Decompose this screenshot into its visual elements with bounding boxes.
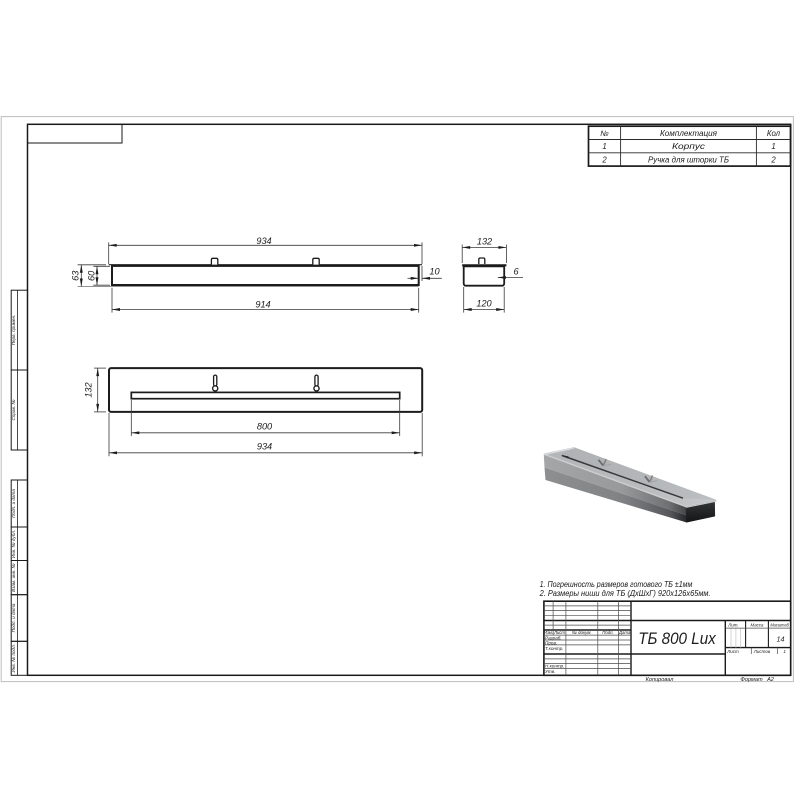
svg-text:Копировал: Копировал bbox=[646, 677, 675, 683]
svg-text:Пров.: Пров. bbox=[545, 641, 557, 646]
svg-text:Лист: Лист bbox=[726, 649, 739, 654]
svg-text:Подп.: Подп. bbox=[602, 630, 613, 635]
svg-text:Инв. № подл.: Инв. № подл. bbox=[11, 644, 16, 673]
svg-text:Масштаб: Масштаб bbox=[770, 623, 789, 628]
svg-text:14: 14 bbox=[777, 635, 785, 644]
svg-text:Лит.: Лит. bbox=[727, 623, 739, 628]
svg-text:Корпус: Корпус bbox=[672, 142, 705, 151]
svg-text:Утв.: Утв. bbox=[545, 669, 555, 674]
svg-text:А2: А2 bbox=[766, 677, 775, 683]
svg-text:Перв. примен.: Перв. примен. bbox=[11, 315, 16, 346]
svg-text:Взам. инв. №: Взам. инв. № bbox=[11, 563, 16, 591]
svg-text:№ докум.: № докум. bbox=[572, 630, 592, 635]
svg-text:1: 1 bbox=[771, 142, 775, 151]
svg-text:Н.контр.: Н.контр. bbox=[545, 663, 564, 668]
svg-text:914: 914 bbox=[255, 300, 270, 310]
svg-text:2: 2 bbox=[770, 156, 776, 165]
svg-text:Формат: Формат bbox=[740, 677, 763, 683]
svg-text:132: 132 bbox=[83, 382, 93, 397]
svg-text:Подп. и дата: Подп. и дата bbox=[11, 603, 16, 632]
svg-text:Ручка для шторки ТБ: Ручка для шторки ТБ bbox=[648, 156, 729, 165]
svg-text:Справ. №: Справ. № bbox=[11, 400, 16, 421]
svg-text:Изм.: Изм. bbox=[544, 630, 553, 635]
svg-text:800: 800 bbox=[257, 422, 273, 432]
svg-text:Комплектация: Комплектация bbox=[660, 129, 718, 138]
svg-text:Листов: Листов bbox=[753, 649, 771, 654]
svg-text:Инв. № дубл.: Инв. № дубл. bbox=[11, 530, 16, 558]
svg-text:120: 120 bbox=[476, 299, 492, 309]
svg-text:934: 934 bbox=[257, 442, 272, 452]
svg-text:Масса: Масса bbox=[751, 623, 764, 628]
svg-text:№: № bbox=[600, 129, 608, 138]
svg-text:Лист: Лист bbox=[553, 630, 565, 635]
svg-text:2. Размеры ниши для ТБ (ДхШхГ): 2. Размеры ниши для ТБ (ДхШхГ) 920х126х6… bbox=[539, 588, 711, 598]
svg-text:1: 1 bbox=[602, 142, 606, 151]
svg-text:6: 6 bbox=[513, 267, 519, 277]
svg-text:10: 10 bbox=[429, 267, 440, 277]
svg-text:934: 934 bbox=[256, 236, 271, 246]
svg-text:2: 2 bbox=[601, 156, 607, 165]
svg-text:Дата: Дата bbox=[618, 630, 631, 635]
svg-text:Кол: Кол bbox=[767, 129, 781, 138]
svg-text:132: 132 bbox=[477, 236, 492, 246]
svg-text:Подп. и дата: Подп. и дата bbox=[11, 489, 16, 518]
svg-text:ТБ 800 Lux: ТБ 800 Lux bbox=[638, 630, 716, 648]
svg-text:63: 63 bbox=[71, 270, 81, 281]
svg-text:Т.контр.: Т.контр. bbox=[545, 646, 564, 651]
svg-text:60: 60 bbox=[86, 270, 96, 281]
